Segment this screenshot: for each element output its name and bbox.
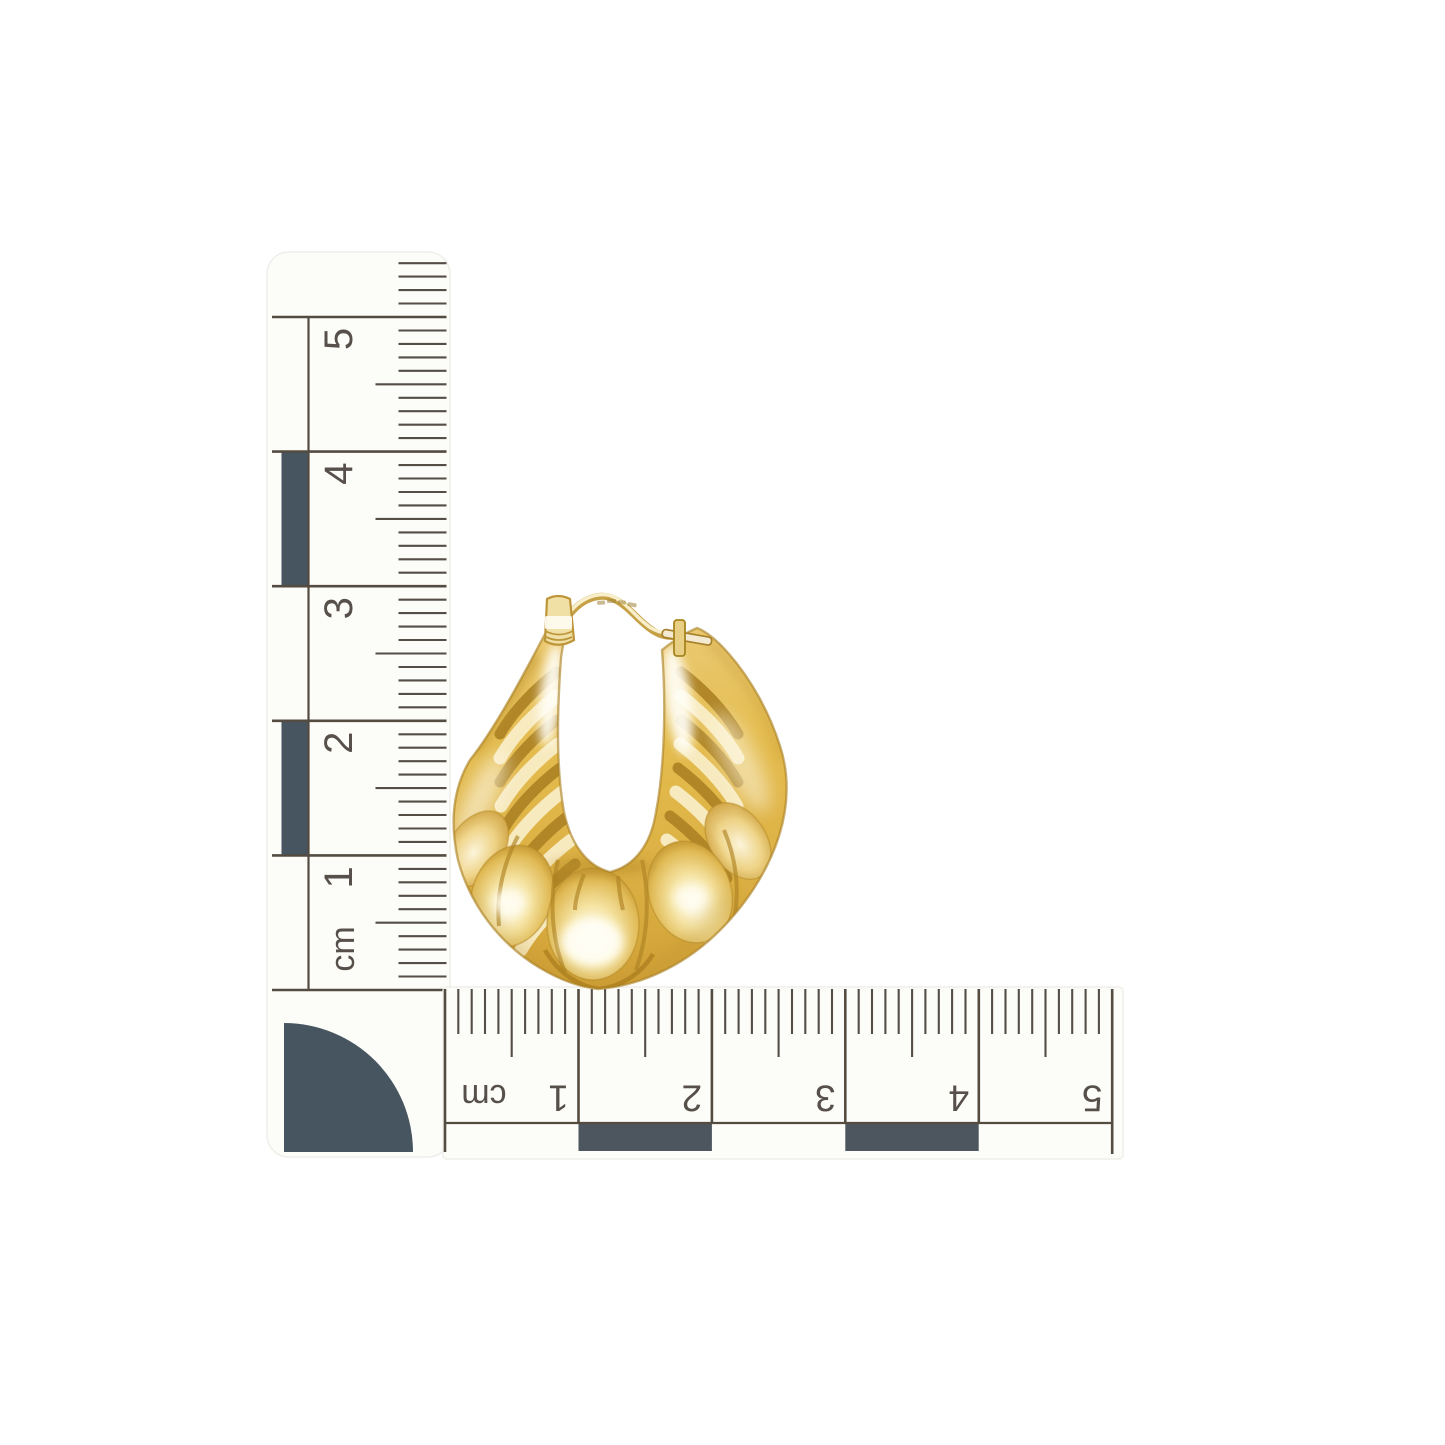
svg-text:4: 4 — [949, 1078, 970, 1119]
svg-text:3: 3 — [317, 597, 361, 619]
svg-text:3: 3 — [815, 1078, 836, 1119]
svg-text:cm: cm — [324, 926, 362, 971]
svg-text:1: 1 — [548, 1078, 569, 1119]
svg-text:2: 2 — [317, 732, 361, 754]
svg-text:4: 4 — [317, 462, 361, 484]
svg-text:5: 5 — [317, 328, 361, 350]
svg-text:5: 5 — [1082, 1078, 1103, 1119]
svg-text:cm: cm — [461, 1077, 506, 1115]
svg-text:2: 2 — [682, 1078, 703, 1119]
svg-text:1: 1 — [317, 866, 361, 888]
